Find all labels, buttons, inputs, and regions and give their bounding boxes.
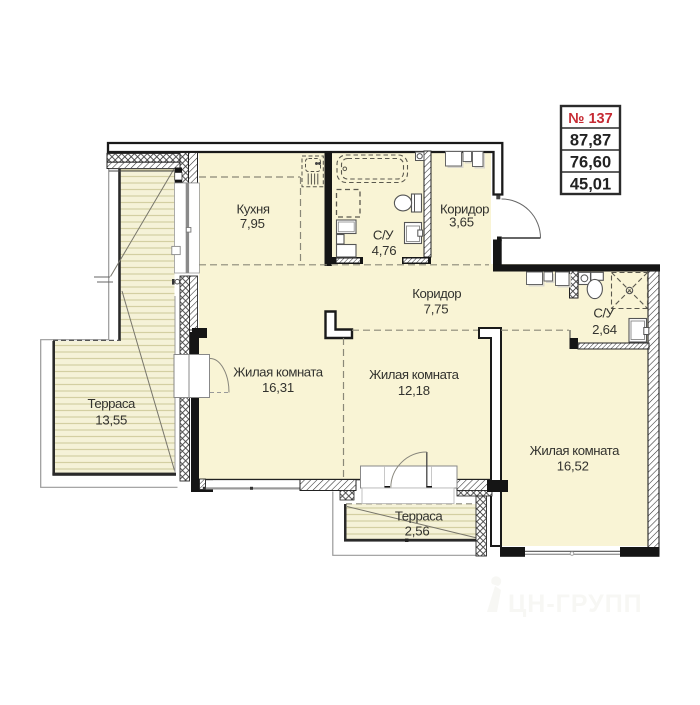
svg-text:Терраса: Терраса [87,396,136,411]
svg-text:Жилая комната: Жилая комната [369,367,460,382]
svg-text:Терраса: Терраса [395,509,444,524]
svg-text:45,01: 45,01 [570,176,611,194]
svg-text:С/У: С/У [373,228,394,243]
svg-text:4,76: 4,76 [372,243,397,258]
svg-text:7,95: 7,95 [240,216,265,231]
svg-text:87,87: 87,87 [570,132,611,150]
svg-text:№ 137: № 137 [568,111,612,127]
svg-text:Жилая комната: Жилая комната [530,443,621,458]
svg-text:2,64: 2,64 [592,322,617,337]
svg-text:2,56: 2,56 [405,524,430,539]
svg-text:13,55: 13,55 [95,413,127,428]
svg-text:ЦН-ГРУПП: ЦН-ГРУПП [508,590,643,618]
svg-text:16,52: 16,52 [557,459,589,474]
svg-text:16,31: 16,31 [262,380,294,395]
svg-text:7,75: 7,75 [424,302,449,317]
svg-text:76,60: 76,60 [570,154,611,172]
svg-text:Кухня: Кухня [236,202,269,217]
svg-text:3,65: 3,65 [449,215,474,230]
svg-text:12,18: 12,18 [398,383,430,398]
svg-text:Коридор: Коридор [412,286,461,301]
svg-text:С/У: С/У [593,306,614,321]
svg-text:Жилая комната: Жилая комната [233,365,324,380]
